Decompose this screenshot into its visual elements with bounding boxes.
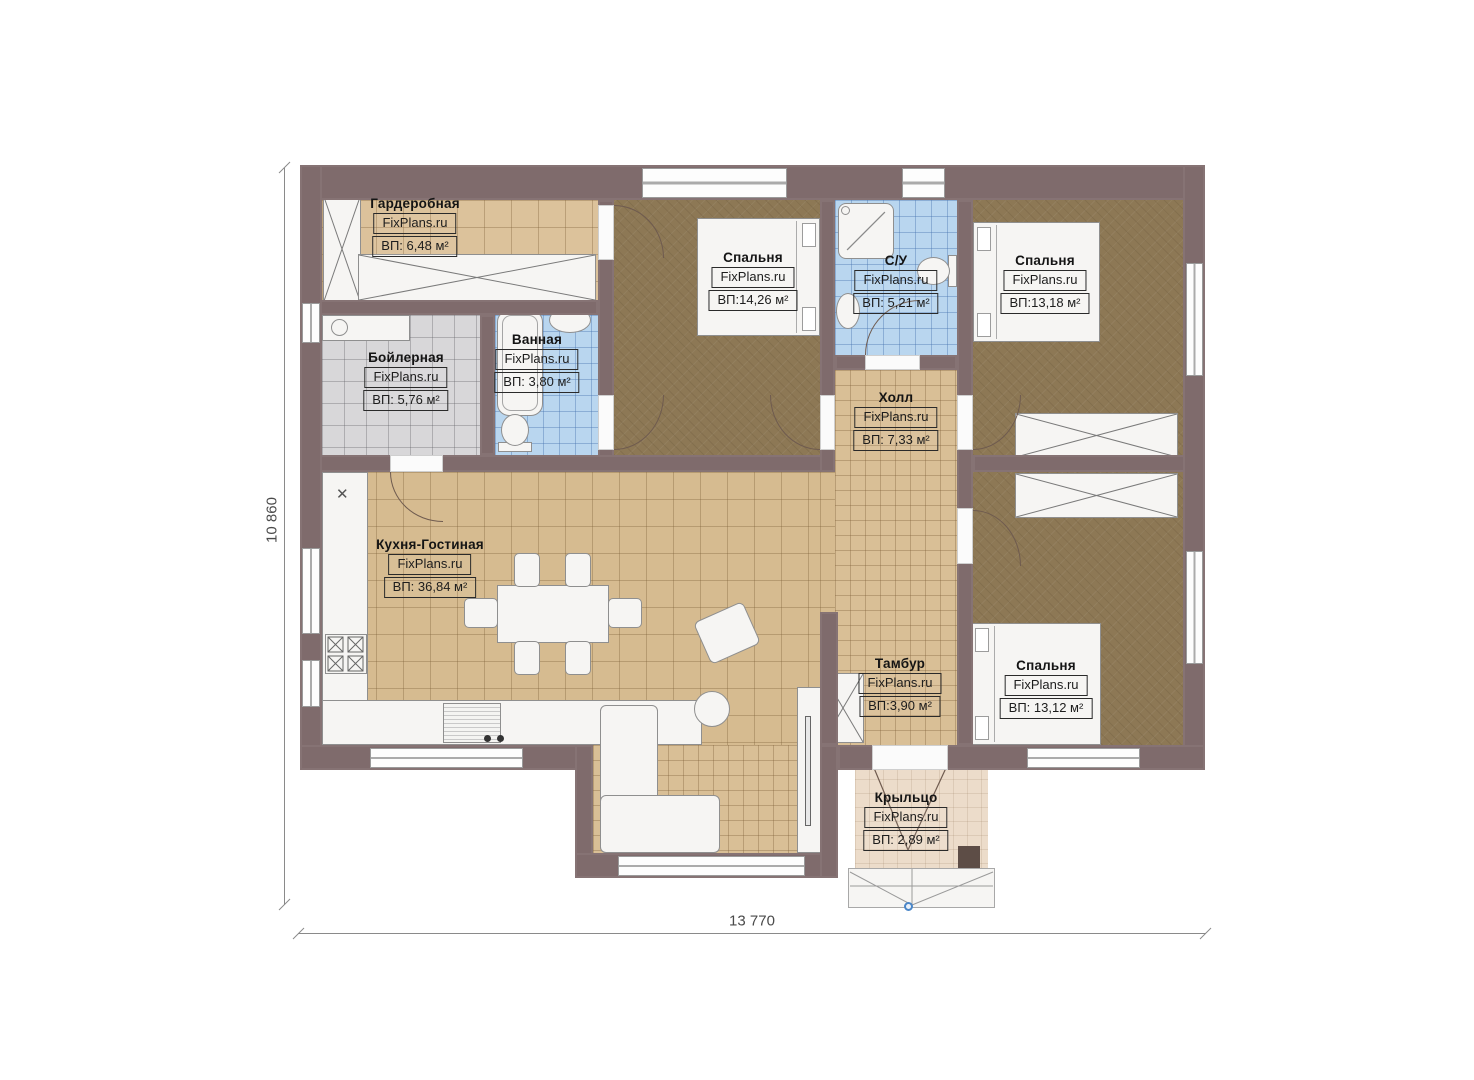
window [302,303,320,343]
watermark-box: FixPlans.ru [858,673,941,694]
watermark-box: FixPlans.ru [711,267,794,288]
door-opening-boiler [390,455,443,472]
door-opening-wc [865,355,920,370]
area-box: ВП: 13,12 м² [1000,698,1093,719]
sink-icon [331,319,348,336]
room-name: Бойлерная [368,350,444,365]
room-label-porch: Крыльцо FixPlans.ru ВП: 2,89 м² [863,790,948,851]
pillow [802,223,816,247]
chair [514,553,540,587]
appliance-knob [497,735,504,742]
coffee-table [694,691,730,727]
pillow [802,307,816,331]
floor-plan: ✕ [0,0,1474,1080]
closet-icon [1015,473,1178,518]
room-name: Кухня-Гостиная [376,537,484,552]
room-label-bedroom-3: Спальня FixPlans.ru ВП: 13,12 м² [1000,658,1093,719]
chair [608,598,642,628]
wall-exterior-right [1183,165,1205,770]
wall-corridor-right [957,200,973,745]
window [1186,263,1203,376]
area-box: ВП: 2,89 м² [863,830,948,851]
wall-bay-right [820,745,838,878]
room-name: Спальня [1016,658,1076,673]
shower-icon [838,203,894,259]
door-opening-bedroom3 [957,508,973,564]
pillow [975,628,989,652]
appliance-knob [484,735,491,742]
room-name: С/У [885,253,908,268]
tv-icon [805,716,811,826]
window [302,548,320,634]
dimension-width: 13 770 [729,913,775,930]
watermark-box: FixPlans.ru [388,554,471,575]
stove-icon [325,634,367,674]
area-box: ВП:14,26 м² [708,290,797,311]
sofa [600,795,720,853]
pillow [977,227,991,251]
room-label-vestibule: Тамбур FixPlans.ru ВП:3,90 м² [858,656,941,717]
pillow [975,716,989,740]
watermark-box: FixPlans.ru [495,349,578,370]
wall-wardrobe-boiler [320,300,598,315]
window [618,856,805,876]
room-label-bathroom: Ванная FixPlans.ru ВП: 3,80 м² [494,332,579,393]
wall-kitchen-vestibule [820,612,838,745]
wall-boiler-bath [480,315,495,455]
area-box: ВП: 36,84 м² [384,577,477,598]
room-name: Спальня [1015,253,1075,268]
closet-icon [323,196,361,302]
room-name: Холл [879,390,914,405]
room-label-kitchen-living: Кухня-Гостиная FixPlans.ru ВП: 36,84 м² [376,537,484,598]
chair [565,641,591,675]
dishwasher-icon [443,703,501,743]
room-label-bedroom-2: Спальня FixPlans.ru ВП:13,18 м² [1000,253,1089,314]
floor-kitchen-passage [820,472,835,612]
area-box: ВП: 5,21 м² [853,293,938,314]
closet-icon [1015,413,1178,458]
toilet-icon [501,414,529,446]
watermark-box: FixPlans.ru [373,213,456,234]
room-label-hall: Холл FixPlans.ru ВП: 7,33 м² [853,390,938,451]
watermark-box: FixPlans.ru [864,807,947,828]
area-box: ВП: 5,76 м² [363,390,448,411]
door-opening-bathroom [598,395,614,450]
wall-bedroom2-bedroom3 [973,455,1185,472]
porch-pillar [958,846,980,868]
bed-fold-line [994,626,995,742]
door-opening-wardrobe [598,205,614,260]
shower-head-icon [841,206,850,215]
door-opening-bedroom1 [820,395,835,450]
area-box: ВП:3,90 м² [859,696,941,717]
watermark-box: FixPlans.ru [854,407,937,428]
watermark-box: FixPlans.ru [1003,270,1086,291]
room-name: Ванная [512,332,562,347]
window [1027,748,1140,768]
porch-steps [848,868,995,908]
room-name: Гардеробная [370,196,460,211]
kitchen-sink-icon: ✕ [336,487,349,502]
window [642,168,787,198]
door-opening-entry [872,745,948,770]
door-opening-bedroom2 [957,395,973,450]
bed-fold-line [996,225,997,339]
area-box: ВП: 3,80 м² [494,372,579,393]
closet-icon [358,254,596,301]
room-label-boiler: Бойлерная FixPlans.ru ВП: 5,76 м² [363,350,448,411]
room-label-bedroom-1: Спальня FixPlans.ru ВП:14,26 м² [708,250,797,311]
window [1186,551,1203,664]
chair [464,598,498,628]
pillow [977,313,991,337]
window [370,748,523,768]
chair [565,553,591,587]
window [902,168,945,198]
area-box: ВП: 6,48 м² [372,236,457,257]
area-box: ВП:13,18 м² [1000,293,1089,314]
room-name: Крыльцо [875,790,938,805]
dining-table [497,585,609,643]
entry-marker-dot [904,902,913,911]
watermark-box: FixPlans.ru [1004,675,1087,696]
chair [514,641,540,675]
room-name: Спальня [723,250,783,265]
watermark-box: FixPlans.ru [364,367,447,388]
watermark-box: FixPlans.ru [854,270,937,291]
window [302,660,320,707]
area-box: ВП: 7,33 м² [853,430,938,451]
room-label-wc: С/У FixPlans.ru ВП: 5,21 м² [853,253,938,314]
dimension-height: 10 860 [264,497,281,543]
room-name: Тамбур [875,656,925,671]
room-label-wardrobe: Гардеробная FixPlans.ru ВП: 6,48 м² [370,196,460,257]
